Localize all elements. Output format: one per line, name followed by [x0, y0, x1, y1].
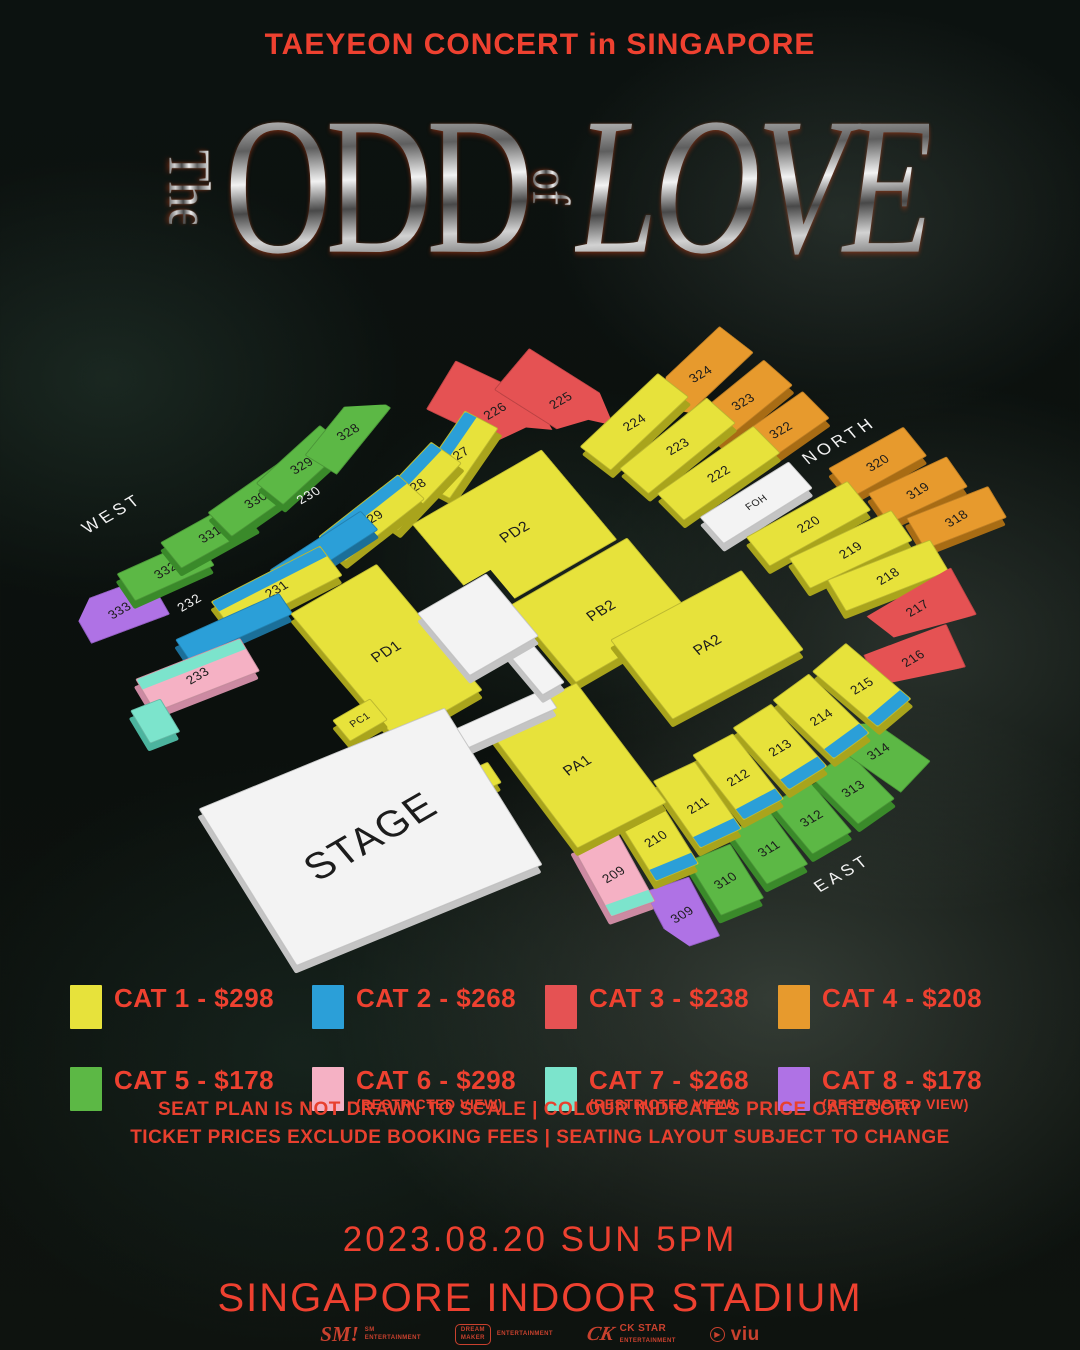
- disclaimer-line-2: TICKET PRICES EXCLUDE BOOKING FEES | SEA…: [0, 1124, 1080, 1152]
- price-legend: CAT 1 - $298CAT 2 - $268CAT 3 - $238CAT …: [70, 985, 1020, 1112]
- event-date: 2023.08.20 SUN 5PM: [0, 1220, 1080, 1260]
- legend-label-cat7: CAT 7 - $268: [589, 1067, 749, 1094]
- section-label-323: 323: [728, 390, 758, 413]
- ck-line2: ENTERTAINMENT: [620, 1338, 676, 1344]
- section-label-PC1: PC1: [347, 711, 372, 730]
- legend-text-cat4: CAT 4 - $208: [822, 985, 982, 1012]
- ck-line1: CK STAR: [620, 1323, 667, 1334]
- ck-star-logo-icon: CK: [585, 1323, 617, 1346]
- legend-swatch-cat1: [70, 985, 102, 1029]
- legend-label-cat1: CAT 1 - $298: [114, 985, 274, 1012]
- section-label-PA1: PA1: [559, 752, 595, 779]
- legend-text-cat5: CAT 5 - $178: [114, 1067, 274, 1094]
- section-label-319: 319: [903, 479, 933, 502]
- section-209-restricted-band: [605, 890, 654, 916]
- sponsor-sm-entertainment: SM! SM ENTERTAINMENT: [320, 1322, 421, 1347]
- legend-text-cat2: CAT 2 - $268: [356, 985, 516, 1012]
- dream-maker-logo-icon: DREAM MAKER: [455, 1324, 491, 1344]
- sponsor-ck-star: CK CK STAR ENTERTAINMENT: [587, 1323, 676, 1346]
- section-label-214: 214: [806, 705, 836, 728]
- section-label-PD2: PD2: [496, 518, 534, 546]
- section-label-218: 218: [873, 564, 903, 587]
- dream-line1: DREAM: [461, 1327, 485, 1333]
- viu-play-icon: ▶: [710, 1327, 725, 1342]
- viu-logo-text: viu: [731, 1324, 760, 1346]
- legend-label-cat5: CAT 5 - $178: [114, 1067, 274, 1094]
- section-211-restricted-band: [693, 818, 741, 847]
- sm-line2: ENTERTAINMENT: [365, 1335, 421, 1341]
- section-label-222: 222: [704, 462, 734, 485]
- legend-label-cat2: CAT 2 - $268: [356, 985, 516, 1012]
- section-label-209: 209: [599, 862, 629, 885]
- legend-swatch-cat4: [778, 985, 810, 1029]
- section-label-PB2: PB2: [583, 596, 620, 624]
- section-label-310: 310: [711, 868, 741, 891]
- dream-line3: ENTERTAINMENT: [497, 1331, 553, 1339]
- dream-line2: MAKER: [461, 1335, 485, 1341]
- legend-label-cat3: CAT 3 - $238: [589, 985, 749, 1012]
- section-label-223: 223: [663, 434, 693, 457]
- section-label-210: 210: [641, 827, 671, 850]
- map-label-232: 232: [174, 591, 205, 615]
- legend-label-cat4: CAT 4 - $208: [822, 985, 982, 1012]
- section-label-313: 313: [838, 776, 868, 799]
- section-label-219: 219: [836, 538, 866, 561]
- section-label-211: 211: [683, 794, 712, 817]
- legend-item-cat4: CAT 4 - $208: [778, 985, 1011, 1029]
- legend-item-cat2: CAT 2 - $268: [312, 985, 545, 1029]
- disclaimer-line-1: SEAT PLAN IS NOT DRAWN TO SCALE | COLOUR…: [0, 1096, 1080, 1124]
- sm-logo-icon: SM!: [320, 1322, 359, 1347]
- ck-star-logo-text: CK STAR ENTERTAINMENT: [620, 1323, 676, 1346]
- legend-text-cat1: CAT 1 - $298: [114, 985, 274, 1012]
- section-label-FOH: FOH: [743, 493, 770, 513]
- section-label-320: 320: [863, 451, 893, 474]
- sponsor-viu: ▶ viu: [710, 1324, 760, 1346]
- section-label-311: 311: [754, 837, 783, 860]
- section-label-314: 314: [863, 739, 893, 762]
- map-label-west: WEST: [78, 490, 147, 538]
- sm-logo-text: SM ENTERTAINMENT: [365, 1327, 421, 1342]
- sponsor-dream-maker: DREAM MAKER ENTERTAINMENT: [455, 1324, 553, 1344]
- map-label-east: EAST: [810, 851, 875, 897]
- section-label-stage: STAGE: [294, 784, 446, 890]
- section-label-212: 212: [723, 765, 753, 788]
- section-label-328: 328: [333, 420, 363, 443]
- section-215-restricted-band: [867, 690, 910, 726]
- section-stage: STAGE: [198, 708, 542, 966]
- section-label-322: 322: [766, 418, 796, 441]
- legend-item-cat3: CAT 3 - $238: [545, 985, 778, 1029]
- section-label-217: 217: [903, 596, 933, 619]
- section-label-324: 324: [686, 362, 716, 385]
- legend-label-cat8: CAT 8 - $178: [822, 1067, 982, 1094]
- section-label-220: 220: [794, 512, 824, 535]
- sponsor-logos: SM! SM ENTERTAINMENT DREAM MAKER ENTERTA…: [0, 1322, 1080, 1347]
- section-210-restricted-band: [649, 853, 697, 881]
- poster: { "header": { "title": "TAEYEON CONCERT …: [0, 0, 1080, 1350]
- disclaimer-notes: SEAT PLAN IS NOT DRAWN TO SCALE | COLOUR…: [0, 1096, 1080, 1151]
- legend-label-cat6: CAT 6 - $298: [356, 1067, 516, 1094]
- section-label-213: 213: [765, 736, 795, 759]
- section-label-216: 216: [898, 646, 928, 669]
- section-label-PD1: PD1: [367, 637, 405, 665]
- legend-item-cat1: CAT 1 - $298: [70, 985, 312, 1029]
- section-label-224: 224: [619, 410, 649, 433]
- section-label-333: 333: [105, 598, 135, 621]
- section-label-215: 215: [847, 674, 877, 697]
- section-label-226: 226: [480, 399, 510, 422]
- section-label-PA2: PA2: [689, 631, 725, 658]
- section-label-225: 225: [546, 388, 576, 411]
- section-label-312: 312: [796, 806, 826, 829]
- section-label-318: 318: [942, 506, 972, 529]
- legend-text-cat3: CAT 3 - $238: [589, 985, 749, 1012]
- venue-name: SINGAPORE INDOOR STADIUM: [0, 1276, 1080, 1321]
- section-label-309: 309: [667, 902, 697, 925]
- legend-swatch-cat3: [545, 985, 577, 1029]
- sm-line1: SM: [365, 1327, 375, 1333]
- legend-swatch-cat2: [312, 985, 344, 1029]
